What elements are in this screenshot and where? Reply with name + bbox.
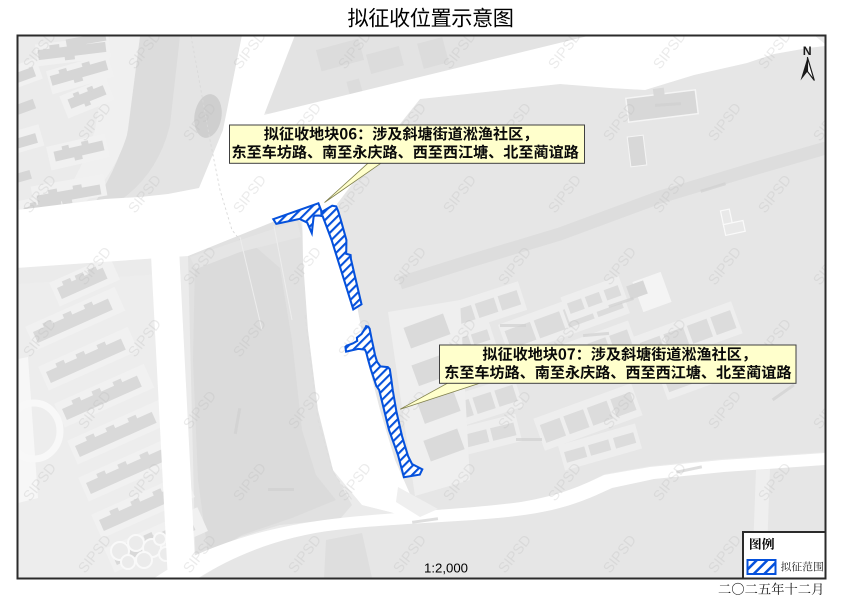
svg-text:N: N — [803, 44, 812, 58]
svg-text:1:2,000: 1:2,000 — [424, 561, 468, 576]
